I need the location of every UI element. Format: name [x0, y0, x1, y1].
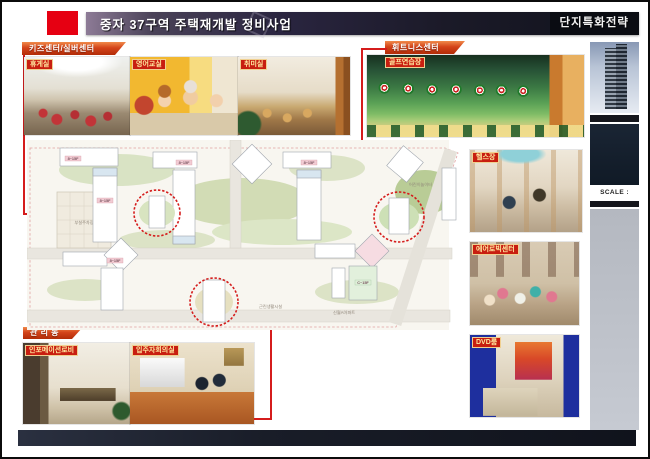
site-plan: 부설주차장 [27, 140, 464, 334]
presentation-slide: 중자 37구역 주택재개발 정비사업 단지특화전략 키즈센터/실버센터 휴게실 … [0, 0, 650, 459]
aerobics-label: 에어로빅센터 [472, 244, 519, 255]
dvd-room-label: DVD룸 [472, 337, 501, 348]
header-bar: 중자 37구역 주택재개발 정비사업 단지특화전략 [86, 12, 639, 35]
tower-slab-left [605, 48, 617, 109]
sidebar-navy-panel [590, 124, 639, 185]
english-class-photo: 영어교실 [130, 57, 238, 135]
golf-range-label: 골프연습장 [385, 57, 425, 68]
parking-label: 부설주차장 [74, 219, 93, 226]
tower-slab-right [616, 44, 627, 109]
svg-text:C~15F: C~15F [357, 281, 369, 285]
english-class-label: 영어교실 [132, 59, 166, 70]
header-strategy-label: 단지특화전략 [550, 12, 639, 35]
svg-text:8~15F: 8~15F [68, 157, 80, 161]
aerobics-photo: 에어로빅센터 [470, 242, 579, 325]
hobby-room-label: 취미실 [240, 59, 267, 70]
tower-rendering-image [590, 42, 639, 113]
sidebar-divider-top [590, 115, 639, 122]
dvd-room-photo: DVD룸 [470, 335, 579, 417]
meeting-room-label: 입주자회의실 [132, 345, 179, 356]
connector-mgmt-bottom [254, 418, 272, 420]
svg-text:8~15F: 8~15F [304, 161, 316, 165]
svg-text:8~15F: 8~15F [100, 199, 112, 203]
info-lobby-photo: 인포메이션로비 [23, 343, 130, 424]
footer-bar [18, 430, 636, 446]
lounge-label: 휴게실 [26, 59, 53, 70]
sidebar-gray-panel [590, 209, 639, 430]
gym-photo: 헬스장 [470, 150, 582, 232]
sidebar-divider-bottom [590, 201, 639, 207]
meeting-room-photo: 입주자회의실 [130, 343, 254, 424]
playground-label: 어린이놀이터 [409, 181, 432, 188]
gym-label: 헬스장 [472, 152, 499, 163]
fitness-center-ribbon: 휘트니스센터 [385, 41, 465, 54]
red-square-logo [47, 11, 78, 35]
kids-silver-center-ribbon: 키즈센터/실버센터 [22, 42, 126, 55]
connector-fitness-top [361, 48, 387, 50]
svg-text:8~15F: 8~15F [179, 161, 191, 165]
info-lobby-label: 인포메이션로비 [25, 345, 78, 356]
apartment-label: 신월A아파트 [333, 309, 355, 316]
lounge-photo: 휴게실 [24, 57, 130, 135]
retail-label: 근린생활시설 [259, 303, 282, 310]
hobby-room-photo: 취미실 [238, 57, 350, 135]
scale-note: SCALE : NONE [590, 186, 639, 199]
golf-range-photo: 골프연습장 [367, 55, 584, 137]
svg-text:8~15F: 8~15F [110, 259, 122, 263]
